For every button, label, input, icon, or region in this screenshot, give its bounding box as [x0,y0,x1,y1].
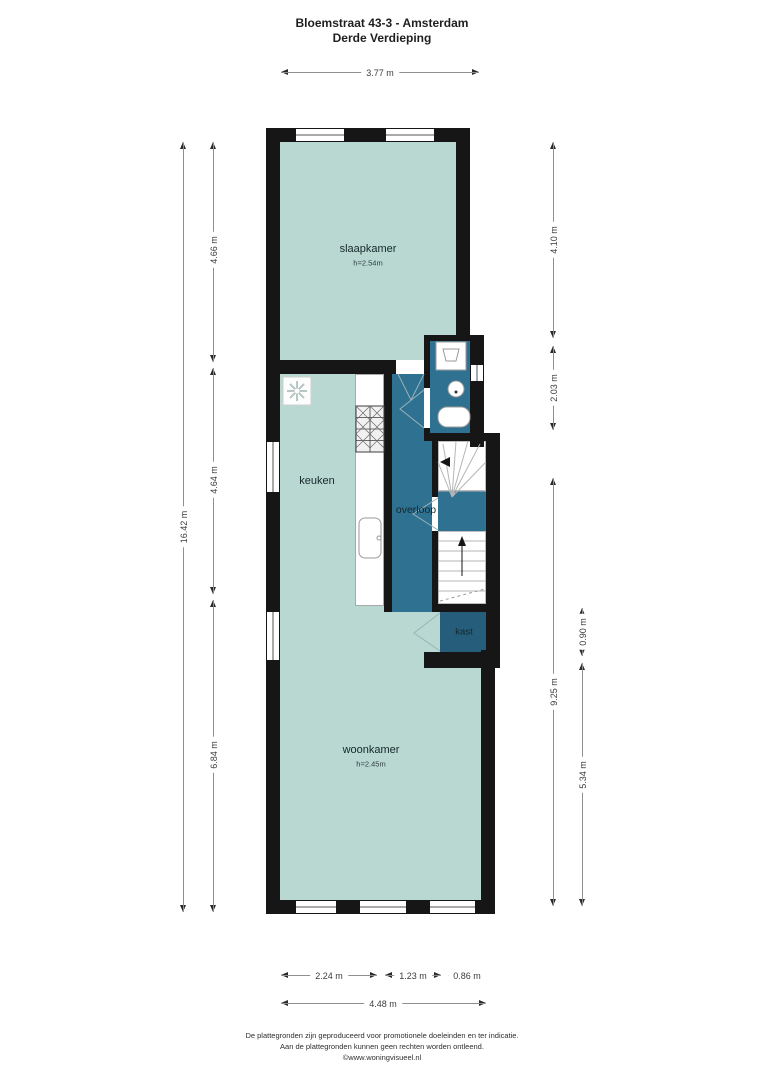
room-height-slaapkamer: h=2.54m [353,259,382,268]
door-opening [424,388,430,428]
room-label-woonkamer: woonkamer [343,744,400,756]
dimension-label: 4.64 m [209,462,219,498]
wall [424,433,500,441]
dimension-label: 4.10 m [549,222,559,258]
room-height-woonkamer: h=2.45m [356,760,385,769]
footer-disclaimer-1: De plattegronden zijn geproduceerd voor … [0,1031,764,1040]
window [296,901,336,913]
dimension-label: 2.24 m [310,971,348,981]
straight-stairs [438,531,486,604]
dimension-label: 0.86 m [448,971,486,981]
page-subtitle: Derde Verdieping [0,31,764,45]
wall [432,604,486,612]
dimension-label: 6.84 m [209,737,219,773]
wall [280,360,396,374]
winder-stairs [438,441,486,491]
dimension-label: 5.34 m [578,757,588,793]
window [360,901,406,913]
wall [384,360,392,612]
room-label-overloop: overloop [396,504,436,516]
door-opening [396,361,424,373]
footer-copyright: ©www.woningvisueel.nl [0,1053,764,1062]
window [267,612,279,660]
dimension-label: 9.25 m [549,674,559,710]
dimension-label: 3.77 m [361,68,399,78]
kitchen-counter [355,374,384,606]
dimension-label: 4.66 m [209,232,219,268]
dimension-label: 1.23 m [394,971,432,981]
wall [486,441,500,668]
room-label-kast: kast [455,627,472,638]
stair-landing [438,491,486,531]
window [471,365,483,381]
floorplan-page: Bloemstraat 43-3 - Amsterdam Derde Verdi… [0,0,764,1080]
dimension-label: 16.42 m [179,507,189,548]
dimension-label: 0.90 m [578,614,588,650]
dimension-label: 2.03 m [549,370,559,406]
room-label-slaapkamer: slaapkamer [340,243,397,255]
window [296,129,344,141]
wall [456,128,470,341]
window [267,442,279,492]
wall [481,650,495,914]
wall [266,128,280,914]
footer-disclaimer-2: Aan de plattegronden kunnen geen rechten… [0,1042,764,1051]
wall [470,335,484,447]
room-label-keuken: keuken [299,475,334,487]
page-title: Bloemstraat 43-3 - Amsterdam [0,16,764,30]
window [386,129,434,141]
window [430,901,475,913]
dimension-label: 4.48 m [364,999,402,1009]
